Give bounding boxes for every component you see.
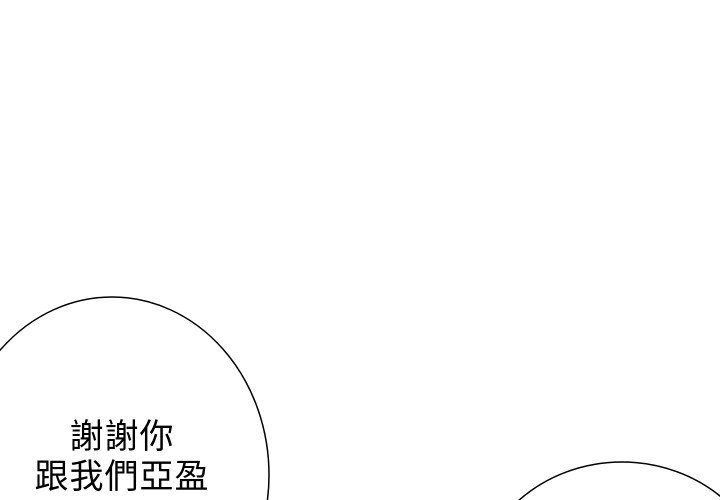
speech-bubble-bottom-right-outline [472, 462, 720, 500]
comic-panel: 謝謝你 跟我們亞盈 [0, 0, 720, 500]
dialogue-line-2: 跟我們亞盈 [0, 457, 252, 497]
dialogue-line-1: 謝謝你 [0, 417, 252, 457]
speech-bubble-left-text: 謝謝你 跟我們亞盈 [0, 417, 252, 497]
